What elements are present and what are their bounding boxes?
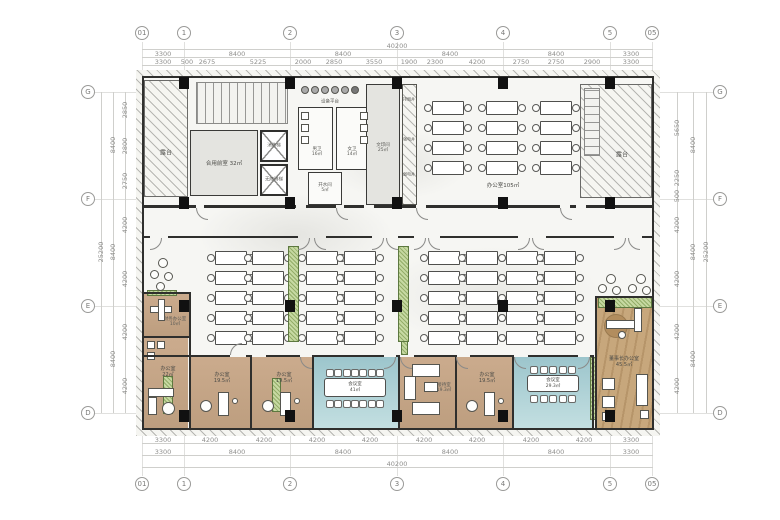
grid-bubble-row: F (713, 192, 727, 206)
dim-label: 4200 (121, 378, 129, 395)
column (179, 77, 189, 89)
dim-label: 4200 (309, 436, 326, 444)
dim-label: 40200 (387, 42, 408, 50)
dim-label: 4200 (121, 271, 129, 288)
column (179, 300, 189, 312)
dim-label: 3300 (623, 58, 640, 66)
grid-label: 01 (138, 480, 147, 488)
column (392, 300, 402, 312)
column (392, 77, 402, 89)
grid-bubble-col: 05 (645, 26, 659, 40)
grid-label: 4 (501, 480, 505, 488)
grid-label: F (718, 195, 722, 203)
dim-label: 5650 (673, 120, 681, 137)
grid-label: 2 (288, 29, 292, 37)
grid-label: 3 (395, 29, 399, 37)
room-label-terrace-right: 露台 (616, 151, 628, 158)
dim-label: 5225 (250, 58, 267, 66)
dim-label: 8400 (109, 244, 117, 261)
column (498, 300, 508, 312)
dim-label: 2300 (427, 58, 444, 66)
room-label-mens-wc: 男卫16㎡ (312, 147, 322, 157)
grid-bubble-col: 2 (283, 26, 297, 40)
dim-label: 25200 (97, 242, 105, 263)
dim-label: 25200 (702, 242, 710, 263)
dim-label: 2675 (199, 58, 216, 66)
grid-label: D (85, 409, 90, 417)
column (605, 197, 615, 209)
room-label-shared-lobby: 合用前室 32㎡ (206, 159, 242, 167)
dim-label: 4200 (202, 436, 219, 444)
dim-label: 4200 (673, 378, 681, 395)
room-label-print: 文印间25㎡ (376, 143, 390, 153)
dim-label: 2800 (121, 138, 129, 155)
grid-label: D (717, 409, 722, 417)
dim-label: 8400 (229, 50, 246, 58)
dim-label: 2000 (295, 58, 312, 66)
grid-bubble-row: G (713, 85, 727, 99)
column (179, 197, 189, 209)
column (605, 410, 615, 422)
grid-label: E (718, 302, 722, 310)
dim-line (677, 92, 678, 413)
dim-label: 2750 (548, 58, 565, 66)
dim-label: 8400 (689, 244, 697, 261)
column (605, 300, 615, 312)
room-label-equipment-platform: 设备平台 (321, 99, 339, 104)
grid-bubble-row: G (81, 85, 95, 99)
grid-bubble-row: E (713, 299, 727, 313)
dim-label: 2850 (121, 102, 129, 119)
room-label-womens-wc: 女卫14㎡ (347, 147, 357, 157)
room-label-office-22: 办公室22㎡ (160, 366, 175, 378)
grid-label: E (86, 302, 90, 310)
column (605, 77, 615, 89)
column (179, 410, 189, 422)
dim-label: 3300 (155, 50, 172, 58)
dim-label: 3300 (155, 58, 172, 66)
grid-bubble-col: 1 (177, 477, 191, 491)
dim-label: 3300 (155, 436, 172, 444)
dim-label: 40200 (387, 460, 408, 468)
column (498, 77, 508, 89)
shaft-label-smoke: 排烟井 (403, 98, 415, 103)
grid-bubble-col: 5 (603, 477, 617, 491)
column (392, 410, 402, 422)
grid-label: 05 (648, 29, 657, 37)
grid-bubble-col: 4 (496, 477, 510, 491)
room-label-ceo: 董事长办公室45.5㎡ (609, 356, 639, 368)
room-label-hot-water: 开水间5㎡ (318, 183, 332, 193)
dim-label: 8400 (335, 50, 352, 58)
dim-label: 4200 (121, 217, 129, 234)
column (392, 197, 402, 209)
room-label-office-19c: 办公室19.5㎡ (479, 372, 495, 384)
elevator-accessible-label: 无障碍梯 (265, 177, 283, 182)
dim-label: 500 (673, 190, 681, 202)
dim-label: 4200 (673, 271, 681, 288)
dim-label: 2850 (326, 58, 343, 66)
dim-label: 2250 (673, 170, 681, 187)
dim-label: 8400 (335, 448, 352, 456)
column (285, 410, 295, 422)
dim-line (142, 455, 653, 456)
grid-bubble-col: 01 (135, 477, 149, 491)
dim-label: 4200 (256, 436, 273, 444)
grid-bubble-row: F (81, 192, 95, 206)
grid-bubble-row: D (713, 406, 727, 420)
column (285, 197, 295, 209)
grid-bubble-row: E (81, 299, 95, 313)
dim-label: 8400 (689, 351, 697, 368)
grid-label: G (717, 88, 722, 96)
dim-label: 4200 (469, 58, 486, 66)
grid-bubble-col: 1 (177, 26, 191, 40)
room-label-finance: 财务办公室10㎡ (164, 317, 187, 327)
dim-label: 8400 (548, 448, 565, 456)
shaft-label-power: 强电井 (403, 138, 415, 143)
dim-label: 8400 (689, 137, 697, 154)
dim-label: 500 (181, 58, 193, 66)
dim-label: 8400 (109, 351, 117, 368)
room-label-office-north: 办公室105㎡ (487, 181, 520, 189)
room-label-office-19b: 办公室19.5㎡ (276, 372, 292, 384)
dim-line (142, 65, 653, 66)
grid-bubble-col: 01 (135, 26, 149, 40)
column (285, 77, 295, 89)
grid-label: 05 (648, 480, 657, 488)
dim-label: 4200 (416, 436, 433, 444)
grid-bubble-col: 2 (283, 477, 297, 491)
dim-label: 3300 (623, 448, 640, 456)
room-label-office-19a: 办公室19.5㎡ (214, 372, 230, 384)
shaft-label-telecom: 弱电井 (403, 173, 415, 178)
column (285, 300, 295, 312)
dim-label: 8400 (548, 50, 565, 58)
dim-label: 3300 (155, 448, 172, 456)
dim-label: 8400 (109, 137, 117, 154)
dim-label: 4200 (673, 217, 681, 234)
dim-label: 3300 (623, 436, 640, 444)
dim-label: 8400 (229, 448, 246, 456)
grid-label: 4 (501, 29, 505, 37)
dim-label: 2750 (513, 58, 530, 66)
dim-label: 8400 (442, 50, 459, 58)
dim-label: 4200 (121, 324, 129, 341)
dim-label: 8400 (442, 448, 459, 456)
grid-label: 5 (608, 480, 612, 488)
grid-label: 1 (182, 29, 186, 37)
dim-label: 4200 (523, 436, 540, 444)
column (498, 410, 508, 422)
dim-label: 2900 (584, 58, 601, 66)
grid-bubble-row: D (81, 406, 95, 420)
room-label-reception: 接待室19.3㎡ (437, 383, 452, 393)
floor-plan-drawing: 01 1 2 3 4 5 05 01 1 2 3 4 5 05 G F E D … (0, 0, 780, 520)
dim-label: 1900 (401, 58, 418, 66)
grid-label: F (86, 195, 90, 203)
grid-label: 1 (182, 480, 186, 488)
grid-label: G (85, 88, 90, 96)
grid-label: 2 (288, 480, 292, 488)
dim-label: 4200 (576, 436, 593, 444)
dim-label: 4200 (469, 436, 486, 444)
grid-bubble-col: 3 (390, 477, 404, 491)
dim-label: 3300 (623, 50, 640, 58)
grid-bubble-col: 4 (496, 26, 510, 40)
grid-bubble-col: 5 (603, 26, 617, 40)
grid-label: 5 (608, 29, 612, 37)
dim-label: 3550 (366, 58, 383, 66)
column (498, 197, 508, 209)
grid-bubble-col: 05 (645, 477, 659, 491)
dim-label: 4200 (362, 436, 379, 444)
elevator-fire-label: 消防梯 (267, 143, 281, 148)
dim-label: 2750 (121, 173, 129, 190)
grid-label: 3 (395, 480, 399, 488)
room-label-terrace-left: 露台 (160, 149, 172, 156)
grid-label: 01 (138, 29, 147, 37)
dim-label: 4200 (673, 324, 681, 341)
dim-line (142, 57, 653, 58)
grid-bubble-col: 3 (390, 26, 404, 40)
